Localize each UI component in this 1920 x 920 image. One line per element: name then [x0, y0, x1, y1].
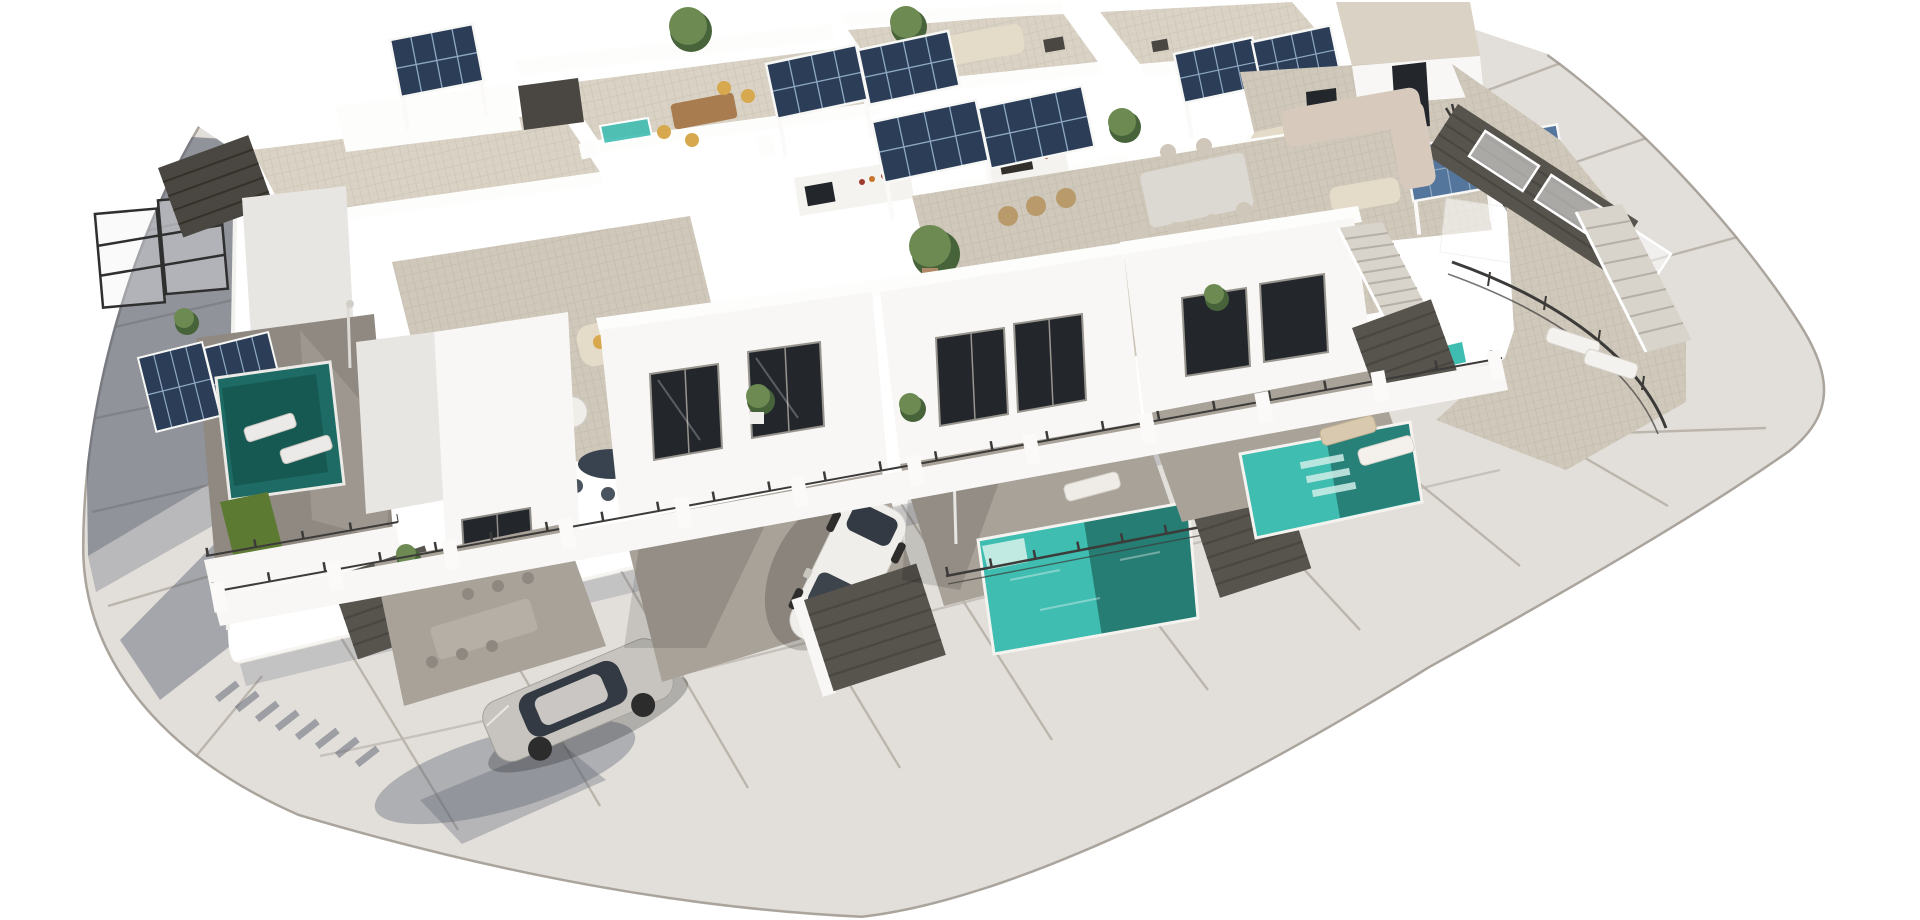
sidewalk-strip	[212, 362, 1506, 662]
sun-lounger	[243, 412, 297, 442]
road-expansion-joints	[84, 44, 1766, 830]
black-roof-railing	[94, 195, 228, 308]
road-outer-kerb	[82, 54, 1825, 918]
solar-pergola-upper-center	[766, 31, 960, 156]
staircase-right	[1576, 204, 1692, 352]
rear-mass-parapets	[944, 126, 1338, 198]
perimeter-road	[82, 28, 1825, 918]
potted-plant	[899, 393, 926, 422]
lawn-patch	[220, 492, 282, 558]
architectural-render	[0, 0, 1920, 920]
villa-complex	[94, 2, 1692, 790]
silver-car	[466, 628, 698, 790]
rooftop-tiled-decks	[252, 2, 1480, 216]
dining-table	[1139, 152, 1254, 229]
white-car	[741, 471, 918, 674]
outdoor-shower	[346, 300, 354, 368]
roof-parapets	[286, 2, 1336, 228]
potted-plant	[1390, 320, 1411, 343]
villa-left	[356, 312, 606, 706]
courtyard-floor	[196, 314, 394, 574]
plot-kerb-line	[238, 358, 1505, 662]
potted-plant	[1204, 284, 1229, 311]
roof-vents-and-louvre-pergola	[518, 36, 1169, 130]
sliding-door	[1260, 274, 1328, 362]
curved-corner-railing	[1448, 262, 1666, 434]
sun-lounger	[1063, 471, 1121, 502]
driveway	[622, 472, 922, 682]
rattan-armchair	[508, 347, 565, 399]
corner-terrace	[1425, 64, 1692, 470]
patio-floor	[374, 524, 606, 706]
front-facade	[434, 312, 580, 586]
center-roof-terrace	[909, 86, 1437, 404]
solar-pergola-balcony	[618, 332, 765, 465]
balcony-terrace	[392, 118, 765, 502]
fence-shadow-stripes	[215, 681, 380, 768]
louvre-screen	[158, 135, 274, 237]
sun-lounger	[1357, 435, 1416, 467]
rooftop-lounge-furniture	[657, 23, 1026, 147]
villa-wall	[242, 186, 354, 350]
pool-right	[1240, 422, 1422, 538]
patio-floor	[1144, 370, 1410, 522]
front-boundary-wall	[212, 353, 1508, 626]
sliding-door	[650, 364, 722, 460]
louvre-privacy-screen	[1425, 104, 1638, 271]
glass-balustrade	[1469, 131, 1671, 279]
right-villa-terrace	[1240, 56, 1518, 252]
sliding-door	[1014, 314, 1086, 412]
patio-floor	[900, 422, 1184, 606]
sun-lounger	[1583, 348, 1639, 380]
terrace-doors	[1306, 62, 1430, 154]
terrace-railing	[1446, 104, 1518, 228]
entry-gate-far-right	[1352, 299, 1458, 403]
front-facade	[880, 254, 1142, 464]
outdoor-table	[429, 598, 538, 661]
villa-center-right	[876, 242, 1208, 654]
roof-tile-texture	[252, 2, 1332, 216]
potted-plant	[174, 308, 199, 335]
sidewalk-left	[228, 150, 254, 632]
left-boundary-wall	[228, 152, 236, 630]
chaise	[1328, 176, 1401, 214]
outdoor-chairs	[426, 572, 534, 668]
terrace-sofa	[1249, 116, 1339, 173]
corner-sofa	[1280, 86, 1437, 190]
rattan-armchair	[574, 317, 631, 369]
glass-winter-garden	[1440, 198, 1538, 266]
rear-white-masses	[948, 138, 1344, 286]
front-facade	[1124, 218, 1374, 414]
potted-plant	[635, 324, 666, 357]
sun-lounger	[279, 434, 333, 464]
villa-right	[1120, 206, 1458, 538]
potted-plant	[746, 384, 775, 424]
side-wall	[356, 332, 444, 514]
pool-center	[978, 502, 1198, 654]
dark-dining-chairs	[569, 477, 651, 501]
solar-panels-carport	[138, 332, 286, 432]
parapet	[1120, 206, 1362, 258]
pool-glimpse-right	[1437, 342, 1466, 368]
solar-pergola-right	[1404, 124, 1566, 234]
sliding-door	[748, 342, 824, 438]
staircase-left	[1338, 222, 1428, 318]
rooftop-plunge-pool	[600, 118, 652, 144]
sliding-door	[462, 508, 534, 590]
villa-center	[596, 280, 922, 682]
outdoor-kitchen-left	[794, 160, 914, 216]
parapet	[876, 242, 1132, 296]
render-viewport	[0, 0, 1920, 920]
outdoor-kitchen-bbq	[984, 144, 1070, 190]
road-surface	[82, 28, 1825, 918]
potted-trees-back	[669, 6, 1445, 143]
coffee-table	[557, 397, 587, 427]
parapet	[596, 280, 880, 334]
sliding-door	[1182, 288, 1250, 376]
solar-pergola-upper-right	[1174, 25, 1341, 138]
wicker-chairs	[998, 188, 1076, 226]
dark-dining-table	[578, 449, 646, 479]
pool-railing	[946, 522, 1208, 584]
villa-far-left	[94, 135, 452, 659]
cast-shadows-on-road	[82, 130, 1512, 846]
potted-plant	[396, 544, 421, 571]
entry-gate-right-center	[1194, 488, 1311, 598]
front-facade	[600, 292, 888, 520]
solar-pergola-top-left	[390, 24, 490, 130]
white-sky-background	[0, 0, 1920, 920]
entry-gate	[330, 545, 453, 659]
solar-pergola-central	[872, 86, 1095, 220]
outdoor-shower	[953, 465, 963, 544]
large-potted-plant	[909, 225, 960, 280]
sliding-door	[936, 328, 1008, 426]
courtyard-pool	[216, 362, 344, 500]
front-wall	[204, 526, 402, 596]
sun-lounger	[1545, 326, 1601, 358]
entry-gate-center	[791, 560, 946, 697]
sun-lounger	[1319, 415, 1378, 447]
dining-chairs	[1132, 138, 1252, 244]
